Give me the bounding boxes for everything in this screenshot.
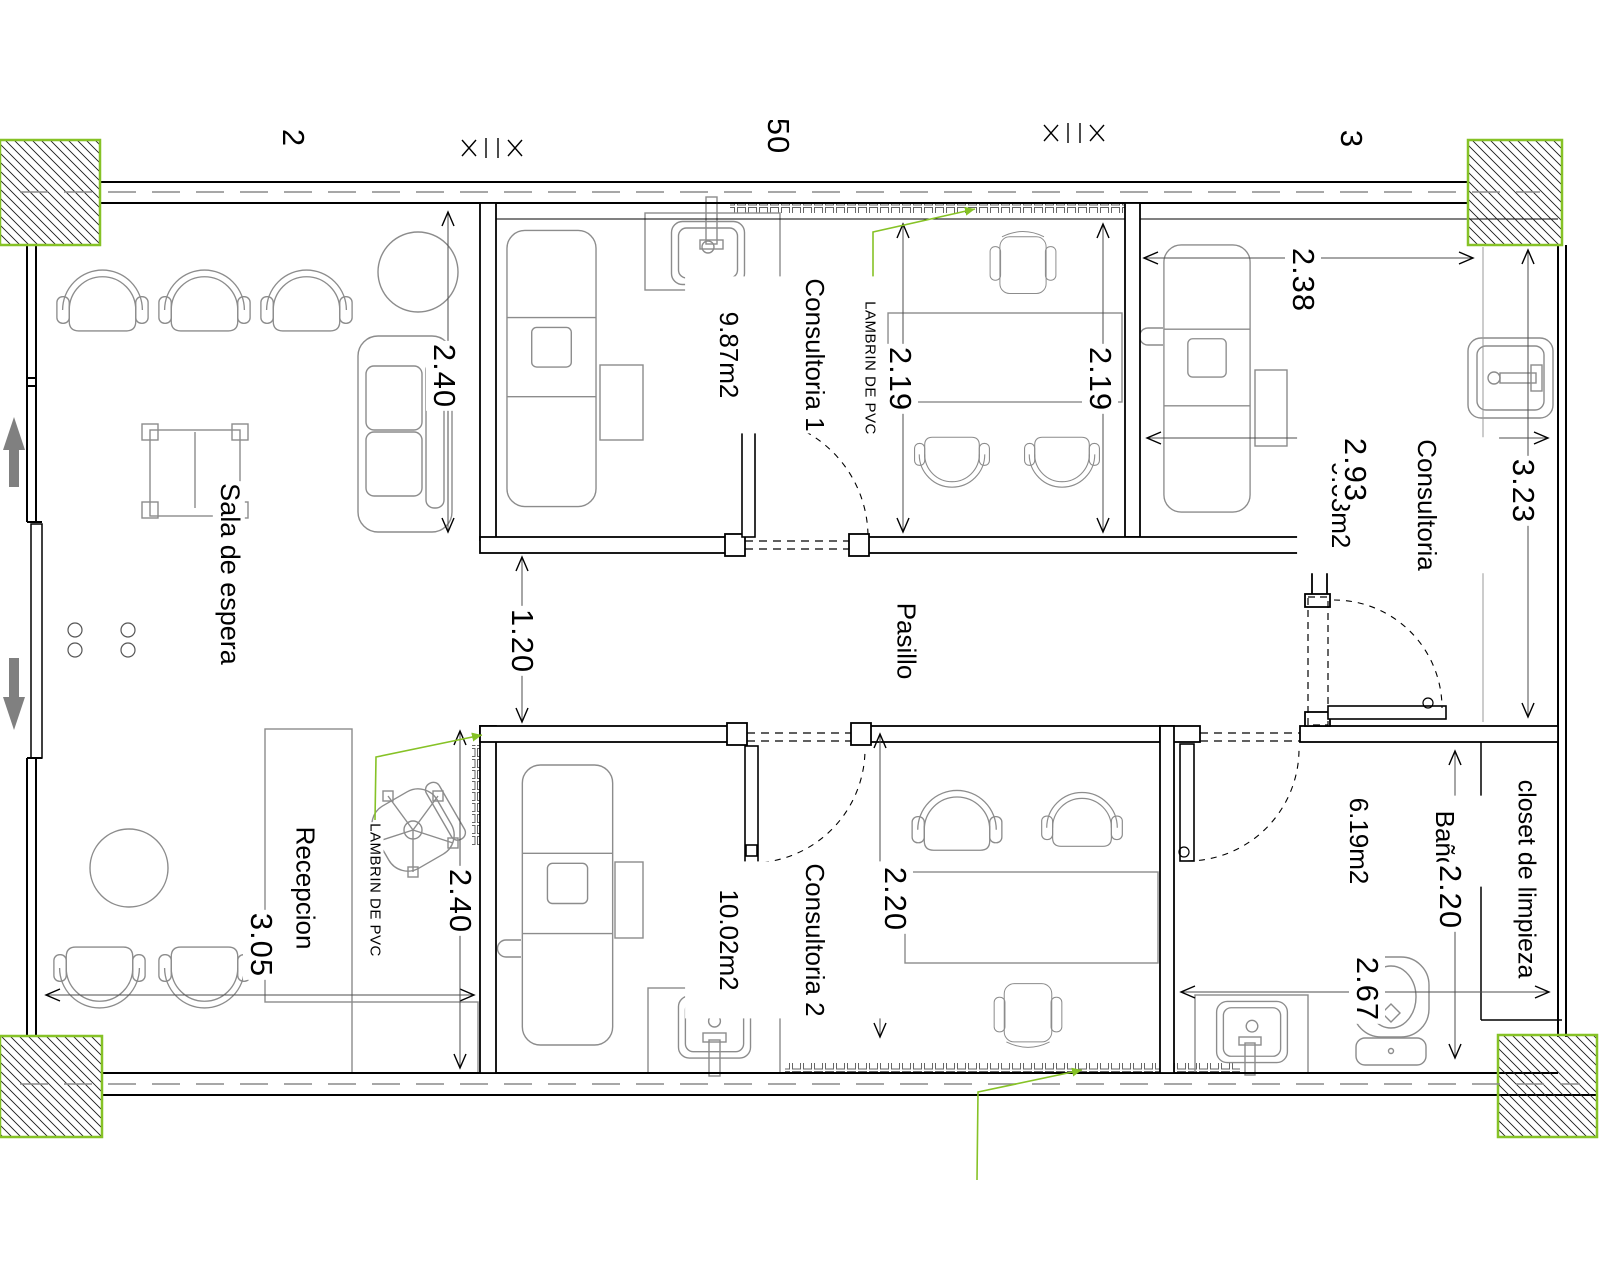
dim-3-05-recepcion: 3.05 <box>243 910 279 980</box>
room-label-consultoria-top: Consultoria 9.03m2 <box>1297 437 1499 573</box>
room-label-sala-de-espera: Sala de espera <box>213 481 245 667</box>
edge-dim-left: 2 <box>270 126 316 168</box>
room-name: Consultoria 2 <box>800 863 829 1016</box>
floor-plan-canvas: Sala de espera Consultoria 1 9.87m2 Cons… <box>0 0 1600 1280</box>
edge-dim-text: 50 <box>760 120 796 157</box>
dim-2-19-right: 2.19 <box>1082 344 1118 414</box>
waiting-chair-row <box>57 270 352 331</box>
room-label-closet: closet de limpieza <box>1511 778 1542 981</box>
door-consultoria-1 <box>742 417 755 537</box>
doctor-chair-bottom <box>994 984 1062 1048</box>
edge-dim-center: 50 <box>752 120 804 170</box>
column-bottom-left <box>0 1036 102 1137</box>
round-table-reception <box>90 829 168 907</box>
room-name: Consultoria 1 <box>800 278 829 431</box>
door-bano <box>1180 744 1194 861</box>
sink-consultoria-top <box>1468 338 1553 418</box>
room-label-consultoria-1: Consultoria 1 9.87m2 <box>685 276 887 433</box>
bed-hook-top <box>1140 328 1164 345</box>
reception-guest-chairs <box>54 947 250 1008</box>
entrance-arrows <box>3 417 25 730</box>
round-table-waiting <box>378 232 458 312</box>
dim-2-93: 2.93 <box>1337 435 1373 505</box>
sliding-door-handles[interactable] <box>68 623 135 657</box>
exam-bed-consultoria-1 <box>507 230 596 506</box>
dim-2-20-bano: 2.20 <box>1432 862 1468 932</box>
dim-1-20-pasillo: 1.20 <box>504 606 540 676</box>
entry-arrow-up-icon <box>3 417 25 487</box>
room-label-consultoria-2: Consultoria 2 10.02m2 <box>685 861 887 1018</box>
bed-side-table-2 <box>615 862 643 938</box>
doctor-chair-top <box>990 232 1056 294</box>
edge-dim-text: 2 <box>275 126 311 150</box>
edge-dim-text: 3 <box>1333 127 1369 151</box>
dim-2-40-top: 2.40 <box>426 341 462 411</box>
room-inner-lines <box>496 219 1562 1020</box>
room-label-recepcion: Recepcion <box>290 825 321 952</box>
column-bottom-right <box>1498 1035 1597 1137</box>
patient-chairs-bottom <box>912 790 1122 850</box>
note-lambrin-top: LAMBRIN DE PVC <box>862 300 879 436</box>
dim-3-23: 3.23 <box>1505 456 1541 526</box>
dim-2-38: 2.38 <box>1285 245 1321 315</box>
note-lambrin-recepcion: LAMBRIN DE PVC <box>367 822 384 958</box>
bed-hook-2 <box>498 940 522 957</box>
exam-bed-consultoria-2 <box>522 765 612 1045</box>
room-label-pasillo: Pasillo <box>891 601 922 682</box>
dim-2-19-left: 2.19 <box>882 344 918 414</box>
entry-arrow-down-icon <box>3 658 25 730</box>
bed-side-table-1 <box>600 365 643 440</box>
interior-walls <box>480 203 1558 1073</box>
room-area: 6.19m2 <box>1345 798 1374 885</box>
dim-2-40-bottom: 2.40 <box>442 866 478 936</box>
room-area: 9.87m2 <box>715 278 744 431</box>
room-name: Consultoria <box>1412 439 1441 571</box>
exam-bed-consultoria-top <box>1164 245 1250 512</box>
dim-2-67-bano: 2.67 <box>1349 954 1385 1024</box>
doctor-desk-bottom <box>905 872 1158 963</box>
room-area: 10.02m2 <box>715 863 744 1016</box>
room-label-bano: Baño 6.19m2 <box>1315 796 1517 887</box>
edge-dim-right: 3 <box>1328 124 1374 170</box>
dim-2-20-consultoria2: 2.20 <box>877 864 913 934</box>
bed-side-table-top <box>1255 370 1287 446</box>
patient-chairs-top <box>915 437 1100 487</box>
